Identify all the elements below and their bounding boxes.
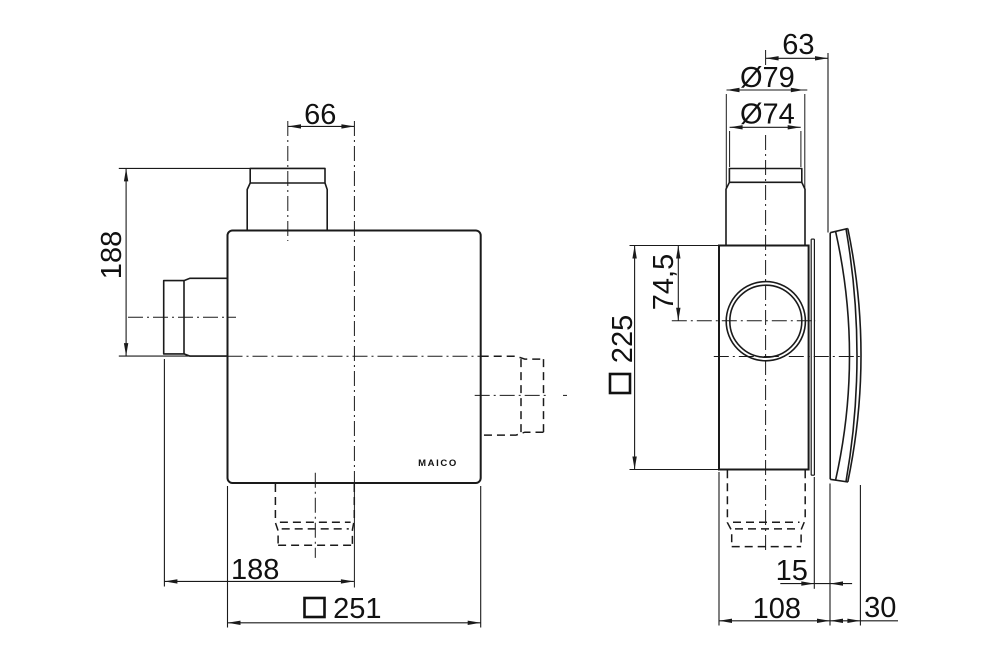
svg-text:Ø79: Ø79 bbox=[740, 62, 795, 94]
svg-text:108: 108 bbox=[753, 593, 801, 625]
svg-text:63: 63 bbox=[782, 29, 814, 61]
svg-text:MAICO: MAICO bbox=[418, 458, 458, 469]
svg-text:251: 251 bbox=[333, 593, 381, 625]
svg-text:30: 30 bbox=[864, 592, 896, 624]
svg-text:225: 225 bbox=[607, 315, 639, 363]
svg-text:Ø74: Ø74 bbox=[740, 98, 795, 130]
svg-text:188: 188 bbox=[231, 554, 279, 586]
svg-text:74,5: 74,5 bbox=[648, 254, 680, 310]
svg-text:188: 188 bbox=[96, 231, 128, 279]
